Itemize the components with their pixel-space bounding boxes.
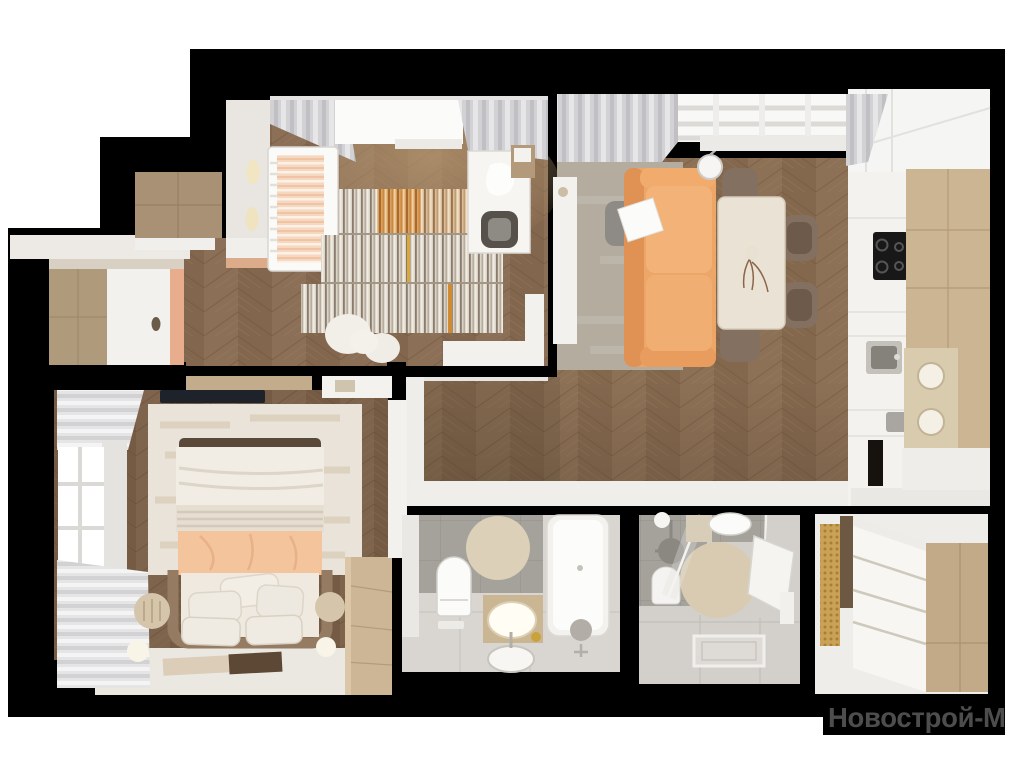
svg-text:Новострой-М: Новострой-М	[828, 702, 1006, 733]
